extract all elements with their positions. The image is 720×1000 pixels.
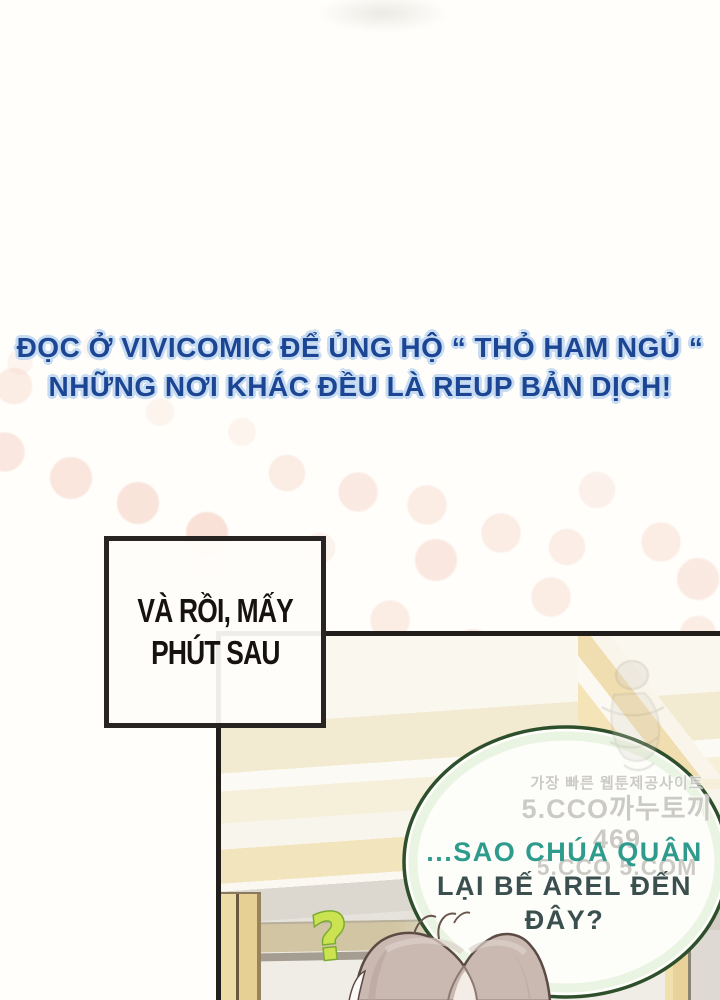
watermark-line-1: 가장 빠른 웹툰제공사이트 [516, 773, 718, 794]
dialogue-line-2: LẠI BẾ AREL ĐẾN [412, 869, 717, 903]
question-mark: ? [308, 899, 353, 976]
translator-note-line-2: NHỮNG NƠI KHÁC ĐỀU LÀ REUP BẢN DỊCH! [0, 367, 720, 406]
caption-box: VÀ RỒI, MẤY PHÚT SAU [104, 536, 326, 728]
translator-note: ĐỌC Ở VIVICOMIC ĐỂ ỦNG HỘ “ THỎ HAM NGỦ … [0, 328, 720, 406]
caption-line-1: VÀ RỒI, MẤY [137, 591, 292, 631]
faint-sketch-top [318, 0, 448, 32]
caption-line-2: PHÚT SAU [151, 633, 280, 673]
dialogue-line-1: ...SAO CHÚA QUÂN [412, 835, 717, 869]
speech-bubble-text: ...SAO CHÚA QUÂN LẠI BẾ AREL ĐẾN ĐÂY? [412, 835, 717, 937]
dialogue-line-3: ĐÂY? [412, 903, 717, 937]
translator-note-line-1: ĐỌC Ở VIVICOMIC ĐỂ ỦNG HỘ “ THỎ HAM NGỦ … [0, 328, 720, 367]
comic-page: { "page": { "background": "#fffefb", "ty… [0, 0, 720, 1000]
watermark-sketch-figure [584, 647, 676, 779]
